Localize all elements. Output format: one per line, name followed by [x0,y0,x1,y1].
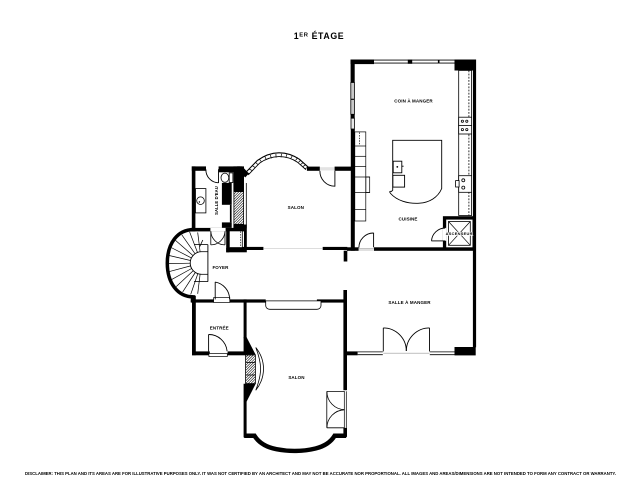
svg-text:CUISINE: CUISINE [398,217,417,222]
svg-text:SALLE À MANGER: SALLE À MANGER [388,299,431,305]
svg-text:SALLE D'EAU: SALLE D'EAU [214,186,219,215]
svg-text:FOYER: FOYER [212,265,229,270]
svg-text:DISCLAIMER: THIS PLAN AND ITS: DISCLAIMER: THIS PLAN AND ITS AREAS ARE … [25,471,616,476]
svg-text:ENTRÉE: ENTRÉE [210,323,229,330]
svg-text:COIN À MANGER: COIN À MANGER [394,98,433,104]
svg-text:SALON: SALON [288,375,304,380]
svg-text:ASCENSEUR: ASCENSEUR [446,231,473,236]
svg-text:SALON: SALON [288,205,304,210]
